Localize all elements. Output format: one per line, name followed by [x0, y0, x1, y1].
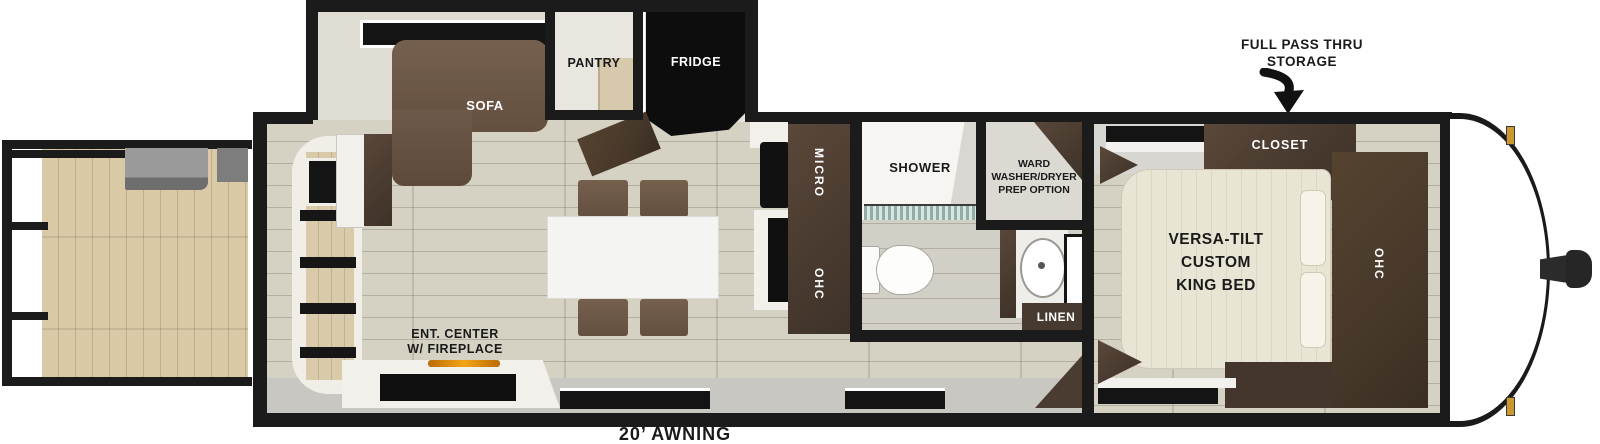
tv — [380, 374, 516, 401]
full-pass-thru-callout: FULL PASS THRU STORAGE — [1192, 36, 1412, 70]
bed-label-line3: KING BED — [1130, 274, 1302, 297]
ward-label-line3: PREP OPTION — [980, 184, 1088, 197]
fridge — [646, 12, 747, 136]
sofa-label: SOFA — [430, 98, 540, 113]
rear-door-rung-2 — [300, 257, 356, 268]
pantry-wall-right — [633, 2, 643, 120]
bath-wall-bottom — [850, 330, 1094, 342]
shower-floor — [864, 204, 976, 220]
bottom-wall — [253, 413, 1452, 427]
deck-rail-left — [2, 140, 12, 386]
marker-light-bottom — [1506, 397, 1515, 416]
bed-label-line1: VERSA-TILT — [1130, 228, 1302, 251]
bedroom-top-window — [1106, 126, 1218, 142]
deck-grill — [125, 148, 208, 190]
ward-label: WARD WASHER/DRYER PREP OPTION — [980, 158, 1088, 197]
dinette-table — [548, 217, 718, 298]
rear-cabinet-base — [336, 134, 366, 228]
dinette-chair-3 — [578, 299, 628, 336]
bedroom-wall-left — [1082, 112, 1094, 427]
slideout-wall-left — [306, 0, 318, 120]
marker-light-top — [1506, 126, 1515, 145]
rear-door-rung-3 — [300, 303, 356, 314]
front-cap — [1450, 113, 1550, 427]
fridge-label: FRIDGE — [645, 55, 747, 69]
pantry-wall-left — [545, 2, 555, 120]
bed-foot-platform — [1225, 362, 1335, 408]
ent-center-label-line2: W/ FIREPLACE — [375, 342, 535, 357]
living-bottom-window — [560, 388, 710, 409]
slideout-wall-top — [306, 0, 758, 12]
bed-pillow-2 — [1300, 272, 1326, 348]
kitchen-cooktop — [760, 142, 790, 208]
dinette-chair-1 — [578, 180, 628, 217]
bedroom-ohc-label: OHC — [1372, 248, 1386, 281]
shower-ward-partition — [976, 112, 986, 230]
ent-center-label: ENT. CENTER W/ FIREPLACE — [375, 327, 535, 357]
deck-side-table — [217, 148, 248, 182]
bed-label: VERSA-TILT CUSTOM KING BED — [1130, 228, 1302, 297]
pantry-label: PANTRY — [553, 56, 635, 70]
dinette-chair-2 — [640, 180, 688, 217]
ward-wall-bottom — [986, 220, 1094, 230]
shower-label: SHOWER — [862, 160, 978, 175]
vanity-side — [1000, 226, 1016, 318]
full-pass-thru-line1: FULL PASS THRU — [1192, 36, 1412, 53]
deck-rail-bottom — [2, 377, 252, 386]
top-wall-rear-segment — [253, 112, 313, 124]
bath-wall-left — [850, 112, 862, 342]
rear-cabinet-top — [364, 134, 392, 226]
bed-pillow-1 — [1300, 190, 1326, 266]
bedroom-bottom-sill — [1098, 378, 1236, 388]
dinette-chair-4 — [640, 299, 688, 336]
kitchen-ohc-label: OHC — [812, 268, 826, 301]
sofa-chaise — [392, 110, 472, 186]
sink-drain — [1038, 262, 1045, 269]
slideout-wall-right — [745, 0, 758, 122]
bedroom-bottom-window — [1098, 388, 1218, 404]
fireplace — [428, 360, 500, 367]
bed-label-line2: CUSTOM — [1130, 251, 1302, 274]
hitch-coupler — [1566, 250, 1592, 288]
toilet-bowl — [876, 245, 934, 295]
closet-label: CLOSET — [1204, 138, 1356, 152]
ward-label-line1: WARD — [980, 158, 1088, 171]
ward-label-line2: WASHER/DRYER — [980, 171, 1088, 184]
storage-arrow-icon — [1258, 68, 1314, 116]
linen-label: LINEN — [1022, 310, 1090, 324]
ent-center-label-line1: ENT. CENTER — [375, 327, 535, 342]
pantry-wall-bottom — [545, 110, 643, 120]
micro-label: MICRO — [812, 148, 826, 198]
floorplan-canvas: SOFA PANTRY FRIDGE MICRO OHC ENT. CENTER… — [0, 0, 1600, 444]
galley-bottom-window — [845, 388, 945, 409]
awning-label: 20’ AWNING — [555, 424, 795, 444]
kitchen-oven — [768, 218, 788, 302]
deck-rail-post-1 — [12, 222, 48, 230]
rear-door-rung-4 — [300, 347, 356, 358]
deck-rail-post-2 — [12, 312, 48, 320]
rear-wall — [253, 112, 267, 427]
